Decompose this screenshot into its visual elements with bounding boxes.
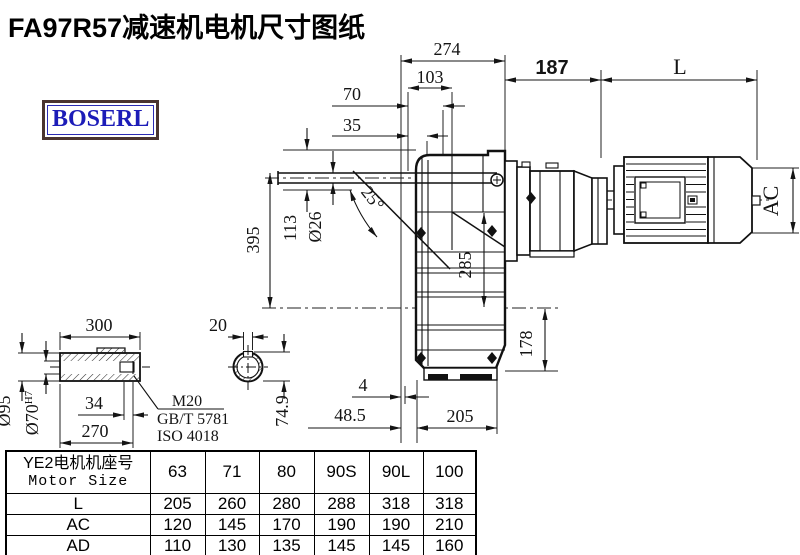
row-label: AC: [6, 514, 150, 535]
table-row-ad: AD 110 130 135 145 145 160: [6, 535, 476, 555]
size-col-90l: 90L: [369, 451, 423, 493]
table-cell: 210: [423, 514, 476, 535]
table-cell: 145: [369, 535, 423, 555]
dim-178-label: 178: [516, 331, 536, 358]
shaft-collar: [97, 348, 125, 353]
dim-AC-label: AC: [758, 186, 783, 217]
table-cell: 280: [259, 493, 314, 514]
table-cell: 130: [205, 535, 259, 555]
size-col-100: 100: [423, 451, 476, 493]
dim-395-label: 395: [243, 227, 263, 254]
dim-4-label: 4: [359, 375, 368, 395]
table-cell: 135: [259, 535, 314, 555]
table-cell: 120: [150, 514, 205, 535]
dim-70-label: 70: [343, 84, 361, 104]
dim-300-label: 300: [86, 315, 113, 335]
table-row-l: L 205 260 280 288 318 318: [6, 493, 476, 514]
dim-270-label: 270: [82, 421, 109, 441]
dim-angle-label: 25°: [357, 182, 388, 214]
dim-205-label: 205: [447, 406, 474, 426]
table-cell: 318: [369, 493, 423, 514]
leader-line: [134, 376, 158, 409]
dim-rod-dia-label: Ø26: [305, 212, 325, 243]
dim-103-label: 103: [417, 67, 444, 87]
dim-bore70-label: Ø70H7: [22, 390, 42, 435]
dim-285-label: 285: [455, 252, 475, 279]
standard-iso-label: ISO 4018: [157, 428, 219, 445]
dimension-drawing: 274 103 70 35 187 L AC 395 113 Ø26 25° 2…: [0, 0, 800, 450]
dim-34-label: 34: [85, 393, 103, 413]
size-col-80: 80: [259, 451, 314, 493]
motor-side-view: [614, 157, 760, 243]
table-header-motor-size: YE2电机机座号 Motor Size: [6, 451, 150, 493]
r57-unit: [505, 161, 615, 261]
table-cell: 318: [423, 493, 476, 514]
fan-cowl: [708, 157, 752, 243]
motor-bell: [614, 166, 624, 234]
table-cell: 260: [205, 493, 259, 514]
header-cn: YE2电机机座号: [7, 454, 150, 473]
table-cell: 205: [150, 493, 205, 514]
table-cell: 288: [314, 493, 369, 514]
size-col-71: 71: [205, 451, 259, 493]
drawing-page: FA97R57减速机电机尺寸图纸 BOSERL: [0, 0, 800, 555]
table-row-ac: AC 120 145 170 190 190 210: [6, 514, 476, 535]
table-cell: 110: [150, 535, 205, 555]
dim-35-label: 35: [343, 115, 361, 135]
table-cell: 160: [423, 535, 476, 555]
dim-od95-label: Ø95: [0, 396, 14, 427]
dim-L-label: L: [673, 54, 686, 79]
dim-74-9-label: 74.9: [272, 395, 292, 427]
standard-gb-label: GB/T 5781: [157, 411, 229, 428]
size-col-90s: 90S: [314, 451, 369, 493]
row-label: AD: [6, 535, 150, 555]
thread-pocket: [120, 362, 134, 372]
row-label: L: [6, 493, 150, 514]
dim-187-label: 187: [535, 57, 568, 79]
table-cell: 145: [314, 535, 369, 555]
dim-113-label: 113: [280, 215, 300, 241]
size-col-63: 63: [150, 451, 205, 493]
shaft-cross-section: [228, 332, 290, 399]
gearbox-foot: [424, 368, 497, 380]
dim-20-label: 20: [209, 315, 227, 335]
thread-spec-label: M20: [172, 393, 202, 410]
table-cell: 145: [205, 514, 259, 535]
motor-size-table: YE2电机机座号 Motor Size 63 71 80 90S 90L 100…: [5, 450, 477, 555]
table-cell: 170: [259, 514, 314, 535]
table-cell: 190: [314, 514, 369, 535]
header-en: Motor Size: [7, 473, 150, 491]
dim-48-5-label: 48.5: [334, 405, 366, 425]
dim-274-label: 274: [434, 39, 461, 59]
table-cell: 190: [369, 514, 423, 535]
